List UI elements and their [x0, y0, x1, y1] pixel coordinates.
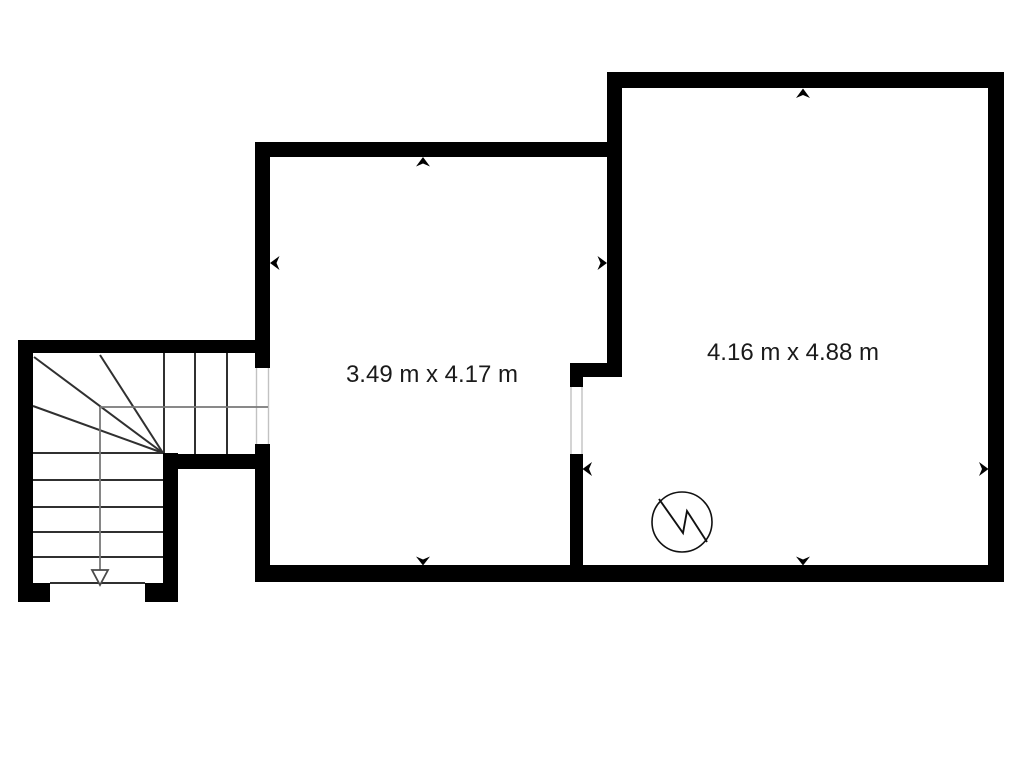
stair-winder-line	[34, 357, 163, 453]
walls	[18, 72, 1004, 602]
wall-direction-markers	[270, 89, 989, 566]
water-heater-symbol	[652, 492, 712, 552]
right-room-dimensions-label: 4.16 m x 4.88 m	[707, 339, 879, 366]
left-room-left-wall-upper	[255, 142, 270, 368]
wall-arrow-up-icon	[796, 89, 810, 99]
stair-left-wall	[18, 340, 33, 602]
floorplan-drawing: 3.49 m x 4.17 m 4.16 m x 4.88 m	[0, 0, 1024, 768]
door-jamb-stub	[570, 377, 583, 387]
wall-arrow-left-icon	[583, 462, 593, 476]
right-room-top-wall	[607, 72, 1004, 88]
wall-arrow-down-icon	[416, 557, 430, 566]
left-room-top-wall	[255, 142, 622, 157]
lightning-bolt-icon	[659, 499, 707, 542]
right-room-right-wall	[988, 72, 1004, 582]
right-room-left-wall-jog	[570, 363, 622, 377]
stair-bottom-wall-left-stub	[18, 583, 50, 602]
stair-right-wall	[163, 453, 178, 602]
left-room-dimensions-label: 3.49 m x 4.17 m	[346, 361, 518, 388]
stair-top-wall	[18, 340, 270, 353]
stair-connector-wall	[163, 454, 270, 469]
stair-winder-line	[100, 355, 163, 453]
floorplan-canvas: 3.49 m x 4.17 m 4.16 m x 4.88 m	[0, 0, 1024, 768]
bottom-exterior-wall	[255, 565, 1004, 582]
wall-arrow-right-icon	[979, 462, 989, 476]
wall-arrow-left-icon	[270, 256, 280, 270]
wall-arrow-down-icon	[796, 557, 810, 566]
wall-arrow-right-icon	[598, 256, 608, 270]
room-partition-wall-lower	[570, 454, 583, 582]
stair-winder-line	[33, 406, 163, 453]
right-room-left-wall-upper	[607, 72, 622, 375]
wall-arrow-up-icon	[416, 157, 430, 167]
